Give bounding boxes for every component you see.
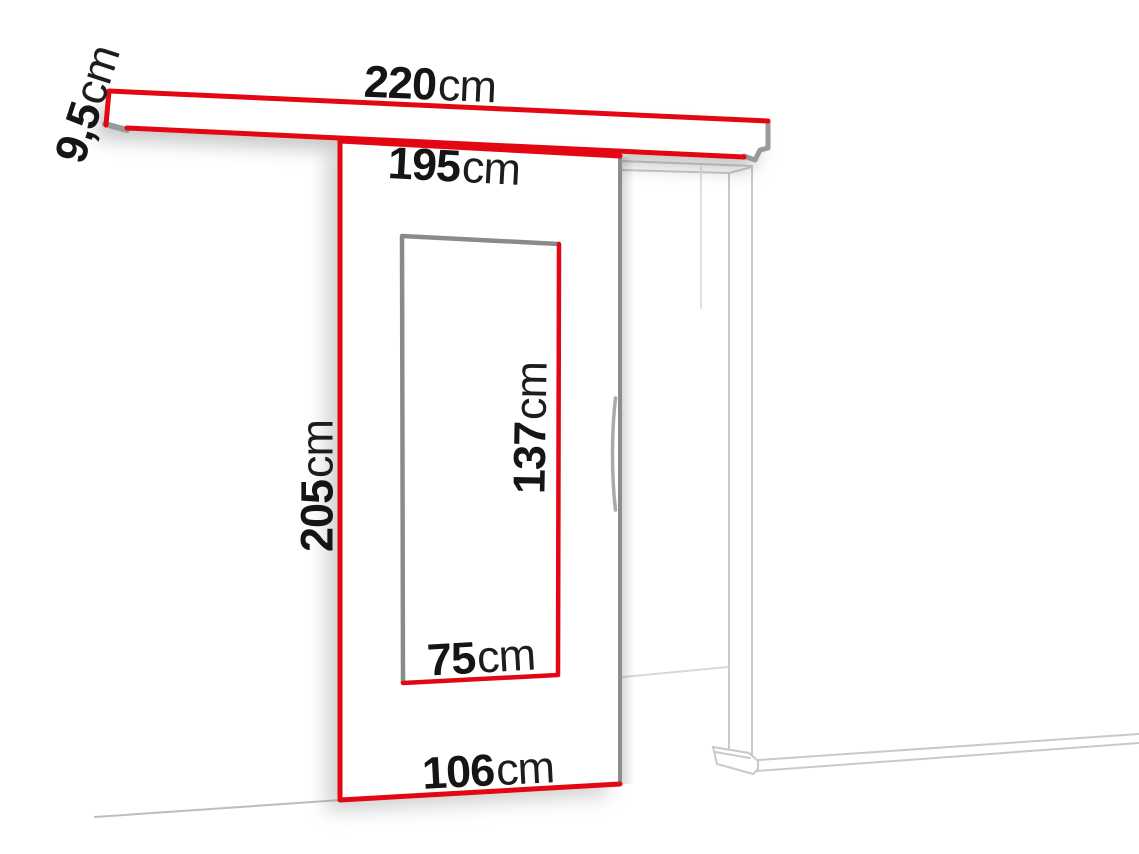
dim-unit: cm: [461, 141, 522, 195]
opening-skirting-line: [623, 667, 728, 677]
dim-unit: cm: [292, 420, 343, 478]
dim-unit: cm: [437, 59, 497, 112]
frame-top-inner-line: [621, 170, 729, 173]
door-panel: [340, 141, 634, 800]
dim-value: 220: [363, 56, 437, 110]
dimension-diagram: 220cm 9,5cm 195cm 205cm 137cm 75cm 106cm: [0, 0, 1139, 854]
dim-label-insert-width: 75cm: [426, 631, 536, 682]
diagram-canvas: [0, 0, 1139, 854]
dim-label-door-width: 106cm: [421, 744, 555, 796]
dim-value: 205: [292, 480, 343, 552]
dim-value: 137: [503, 422, 555, 495]
dim-value: 195: [387, 137, 462, 192]
dim-label-track-width: 220cm: [363, 59, 497, 110]
dim-label-door-height: 205cm: [295, 420, 340, 552]
dim-unit: cm: [505, 362, 557, 421]
dim-label-passage-width: 195cm: [387, 140, 521, 192]
dim-label-insert-height: 137cm: [506, 362, 553, 495]
frame-top-corner-line: [729, 167, 752, 173]
floor-line-left: [95, 800, 341, 817]
dim-unit: cm: [495, 741, 556, 795]
dim-value: 75: [426, 632, 477, 686]
frame-top-outer-line: [621, 161, 752, 166]
door-right-shade: [621, 157, 634, 784]
dim-unit: cm: [476, 628, 537, 682]
dim-value: 106: [421, 744, 496, 799]
